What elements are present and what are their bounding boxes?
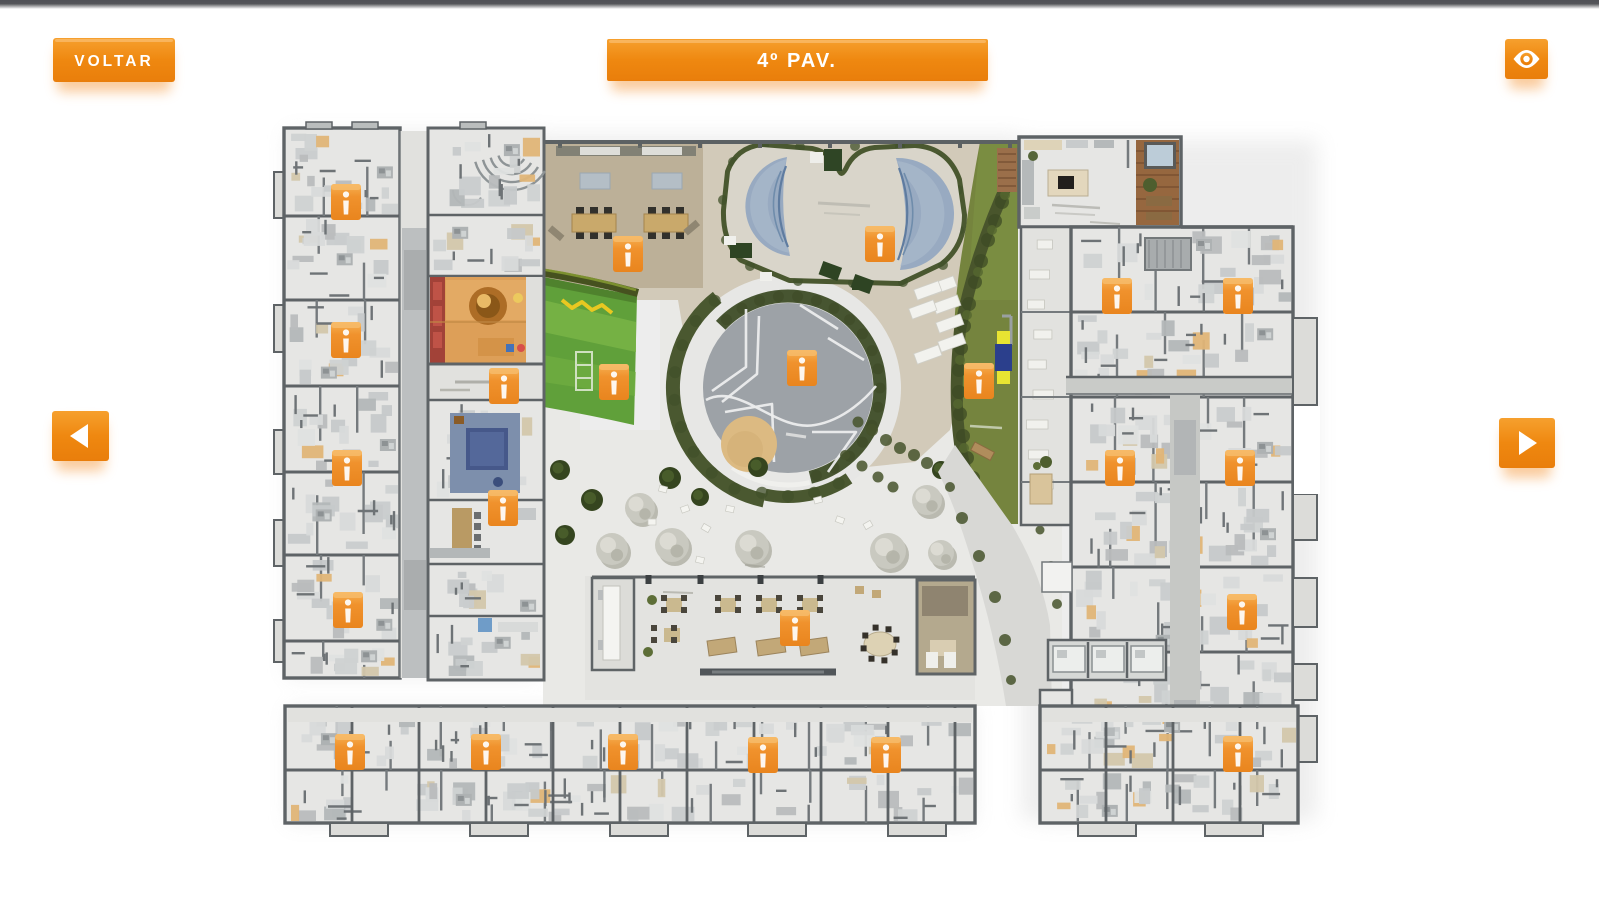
svg-text:4º PAV.: 4º PAV. <box>757 50 837 72</box>
svg-text:VOLTAR: VOLTAR <box>74 53 153 70</box>
